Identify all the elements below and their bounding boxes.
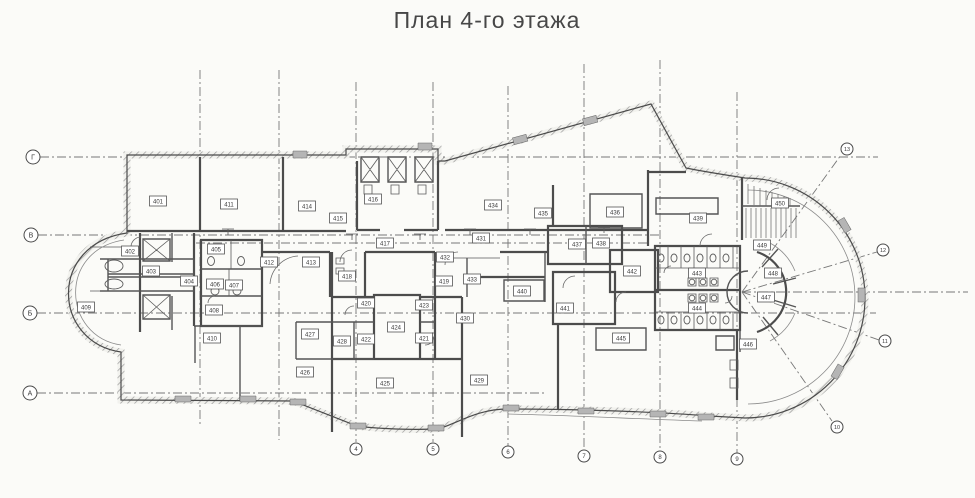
toilet-fixtures — [105, 254, 729, 324]
room-label-439: 439 — [690, 213, 707, 223]
room-label-435: 435 — [535, 208, 552, 218]
wc-fixture — [671, 254, 677, 262]
room-label-405: 405 — [208, 244, 225, 254]
room-number: 401 — [153, 199, 164, 205]
room-number: 422 — [361, 337, 372, 343]
room-number: 431 — [476, 236, 487, 242]
room-number: 428 — [337, 339, 348, 345]
column-marker-4: 4 — [350, 443, 362, 455]
room-number: 436 — [610, 210, 621, 216]
room-label-444: 444 — [689, 303, 706, 313]
sink-fixture — [689, 295, 695, 301]
wc-fixture — [684, 254, 690, 262]
row-marker-Б: Б — [23, 306, 37, 320]
axis-marker-label: 10 — [834, 425, 840, 431]
room-label-433: 433 — [464, 274, 481, 284]
room-number: 439 — [693, 216, 704, 222]
room-label-445: 445 — [613, 333, 630, 343]
room-label-442: 442 — [624, 266, 641, 276]
axis-marker-label: 13 — [844, 147, 850, 153]
radial-marker-12: 12 — [877, 244, 889, 256]
room-label-440: 440 — [514, 286, 531, 296]
room-number: 443 — [692, 271, 703, 277]
room-number: 440 — [517, 289, 528, 295]
room-number: 405 — [211, 247, 222, 253]
wall-joints — [175, 115, 865, 431]
sink-fixture — [700, 279, 706, 285]
room-label-428: 428 — [334, 336, 351, 346]
room-label-418: 418 — [339, 271, 356, 281]
door-swing-arcs — [131, 188, 779, 345]
room-label-448: 448 — [765, 268, 782, 278]
row-marker-В: В — [24, 228, 38, 242]
scanned-floor-plan-sheet: План 4-го этажа — [0, 0, 975, 498]
room-number: 403 — [146, 269, 157, 275]
room-number: 411 — [224, 202, 234, 208]
wall-joint-block — [858, 288, 865, 302]
room-label-427: 427 — [302, 329, 319, 339]
room-label-416: 416 — [365, 194, 382, 204]
room-label-401: 401 — [150, 196, 167, 206]
room-label-403: 403 — [143, 266, 160, 276]
room-number: 410 — [207, 336, 218, 342]
room-label-417: 417 — [377, 238, 394, 248]
room-label-437: 437 — [569, 239, 586, 249]
room-number: 413 — [306, 260, 317, 266]
floor-plan-drawing: План 4-го этажа — [0, 0, 975, 498]
room-label-415: 415 — [330, 213, 347, 223]
room-number: 441 — [560, 306, 571, 312]
room-number: 409 — [81, 305, 92, 311]
room-number: 445 — [616, 336, 627, 342]
room-number: 435 — [538, 211, 549, 217]
axis-marker-label: 11 — [882, 339, 888, 345]
walls-thin — [90, 157, 740, 388]
wc-fixture — [684, 316, 690, 324]
room-label-436: 436 — [607, 207, 624, 217]
room-number: 404 — [184, 279, 195, 285]
wc-fixture — [723, 316, 729, 324]
room-number: 434 — [488, 203, 499, 209]
wc-fixture — [710, 254, 716, 262]
room-label-420: 420 — [358, 298, 375, 308]
room-number: 448 — [768, 271, 779, 277]
room-number: 406 — [210, 282, 221, 288]
room-label-407: 407 — [226, 280, 243, 290]
column-marker-6: 6 — [502, 446, 514, 458]
room-label-412: 412 — [261, 257, 278, 267]
room-label-402: 402 — [122, 246, 139, 256]
wc-fixture — [671, 316, 677, 324]
room-label-426: 426 — [297, 367, 314, 377]
sink-fixture — [700, 295, 706, 301]
room-number: 433 — [467, 277, 478, 283]
room-label-413: 413 — [303, 257, 320, 267]
axis-marker-label: Б — [28, 311, 33, 318]
room-number: 450 — [775, 201, 786, 207]
room-label-447: 447 — [758, 292, 775, 302]
room-number: 444 — [692, 306, 703, 312]
room-label-424: 424 — [388, 322, 405, 332]
room-label-419: 419 — [436, 276, 453, 286]
room-label-414: 414 — [299, 201, 316, 211]
room-label-429: 429 — [471, 375, 488, 385]
room-number: 408 — [209, 308, 220, 314]
room-number: 423 — [419, 303, 430, 309]
room-number: 420 — [361, 301, 372, 307]
room-label-404: 404 — [181, 276, 198, 286]
radial-marker-10: 10 — [831, 421, 843, 433]
sink-fixture — [689, 279, 695, 285]
room-number: 402 — [125, 249, 136, 255]
room-number: 432 — [440, 255, 451, 261]
column-marker-5: 5 — [427, 443, 439, 455]
room-label-409: 409 — [78, 302, 95, 312]
grid-lines — [37, 60, 968, 453]
room-number: 407 — [229, 283, 240, 289]
column-marker-9: 9 — [731, 453, 743, 465]
room-label-423: 423 — [416, 300, 433, 310]
wall-joint-block — [582, 115, 597, 125]
wc-fixture — [697, 254, 703, 262]
room-label-421: 421 — [416, 333, 433, 343]
page-title: План 4-го этажа — [394, 7, 581, 33]
room-label-425: 425 — [377, 378, 394, 388]
room-number: 430 — [460, 316, 471, 322]
room-number: 426 — [300, 370, 311, 376]
wc-fixture — [208, 257, 215, 266]
room-label-411: 411 — [221, 199, 238, 209]
room-label-431: 431 — [473, 233, 490, 243]
room-number: 414 — [302, 204, 313, 210]
room-label-410: 410 — [204, 333, 221, 343]
wall-joint-block — [512, 134, 527, 144]
column-marker-8: 8 — [654, 451, 666, 463]
wc-fixture — [658, 316, 664, 324]
room-number: 419 — [439, 279, 450, 285]
axis-marker-label: 12 — [880, 248, 886, 254]
row-marker-А: А — [23, 386, 37, 400]
room-number: 446 — [743, 342, 754, 348]
axis-marker-label: Г — [31, 155, 35, 162]
room-number: 421 — [419, 336, 430, 342]
radial-marker-11: 11 — [879, 335, 891, 347]
room-number: 415 — [333, 216, 344, 222]
room-label-446: 446 — [740, 339, 757, 349]
room-number: 418 — [342, 274, 353, 280]
room-number: 449 — [757, 243, 768, 249]
room-number: 425 — [380, 381, 391, 387]
room-label-443: 443 — [689, 268, 706, 278]
grid-radial-lines — [742, 155, 968, 421]
room-label-450: 450 — [772, 198, 789, 208]
room-label-422: 422 — [358, 334, 375, 344]
wc-fixture — [697, 316, 703, 324]
interior-walls — [76, 157, 855, 437]
room-label-438: 438 — [593, 238, 610, 248]
axis-marker-label: В — [29, 233, 34, 240]
room-number: 427 — [305, 332, 316, 338]
room-number: 416 — [368, 197, 379, 203]
room-label-434: 434 — [485, 200, 502, 210]
row-marker-Г: Г — [26, 150, 40, 164]
wc-fixture — [710, 316, 716, 324]
grid-horizontal-lines — [37, 157, 878, 393]
room-number: 438 — [596, 241, 607, 247]
room-label-449: 449 — [754, 240, 771, 250]
column-marker-7: 7 — [578, 450, 590, 462]
room-label-432: 432 — [437, 252, 454, 262]
sink-fixture — [711, 295, 717, 301]
room-number: 442 — [627, 269, 638, 275]
room-number: 437 — [572, 242, 583, 248]
room-label-406: 406 — [207, 279, 224, 289]
room-number: 417 — [380, 241, 391, 247]
sink-fixture — [711, 279, 717, 285]
room-number: 429 — [474, 378, 485, 384]
room-number: 447 — [761, 295, 772, 301]
wc-fixture — [238, 257, 245, 266]
wc-fixture — [723, 254, 729, 262]
room-label-408: 408 — [206, 305, 223, 315]
radial-marker-13: 13 — [841, 143, 853, 155]
wall-joint-blocks — [175, 143, 714, 431]
room-label-430: 430 — [457, 313, 474, 323]
room-number: 412 — [264, 260, 275, 266]
axis-marker-label: А — [28, 391, 33, 398]
room-label-441: 441 — [557, 303, 574, 313]
room-number: 424 — [391, 325, 402, 331]
